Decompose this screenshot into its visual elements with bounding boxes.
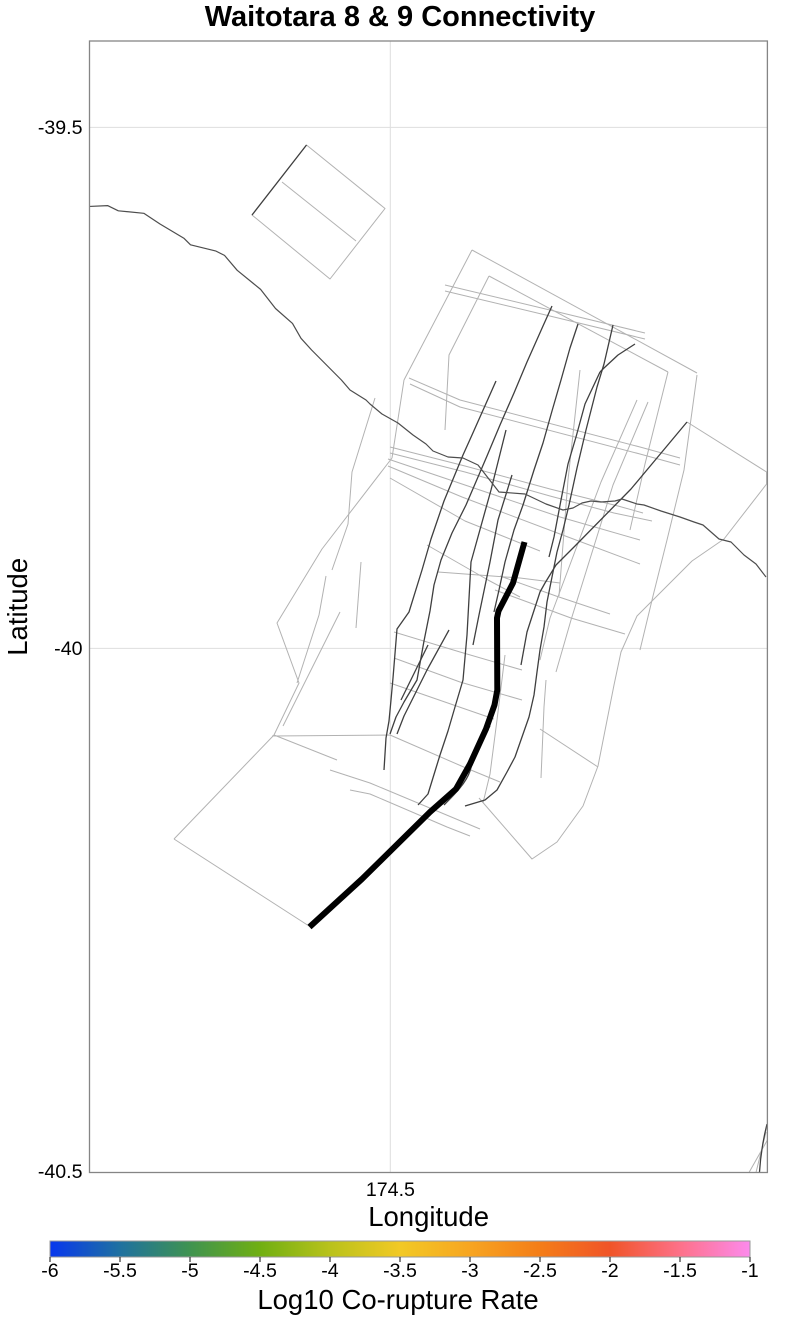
svg-text:-5.5: -5.5 bbox=[103, 1260, 137, 1282]
svg-text:174.5: 174.5 bbox=[366, 1179, 415, 1201]
svg-text:Longitude: Longitude bbox=[368, 1201, 489, 1232]
svg-text:-6: -6 bbox=[41, 1260, 59, 1282]
svg-text:-40: -40 bbox=[54, 638, 82, 660]
svg-text:-4: -4 bbox=[321, 1260, 339, 1282]
svg-text:-3.5: -3.5 bbox=[383, 1260, 417, 1282]
svg-text:Waitotara 8 & 9 Connectivity: Waitotara 8 & 9 Connectivity bbox=[205, 1, 596, 33]
svg-text:-3: -3 bbox=[461, 1260, 479, 1282]
svg-text:-1: -1 bbox=[741, 1260, 758, 1282]
svg-text:Latitude: Latitude bbox=[2, 558, 33, 656]
svg-text:-2.5: -2.5 bbox=[523, 1260, 557, 1282]
svg-text:-5: -5 bbox=[181, 1260, 199, 1282]
svg-text:-40.5: -40.5 bbox=[38, 1161, 83, 1183]
svg-text:-1.5: -1.5 bbox=[663, 1260, 697, 1282]
svg-text:-2: -2 bbox=[601, 1260, 618, 1282]
svg-text:-39.5: -39.5 bbox=[38, 117, 83, 139]
svg-text:Log10 Co-rupture Rate: Log10 Co-rupture Rate bbox=[257, 1284, 538, 1315]
svg-text:-4.5: -4.5 bbox=[243, 1260, 277, 1282]
